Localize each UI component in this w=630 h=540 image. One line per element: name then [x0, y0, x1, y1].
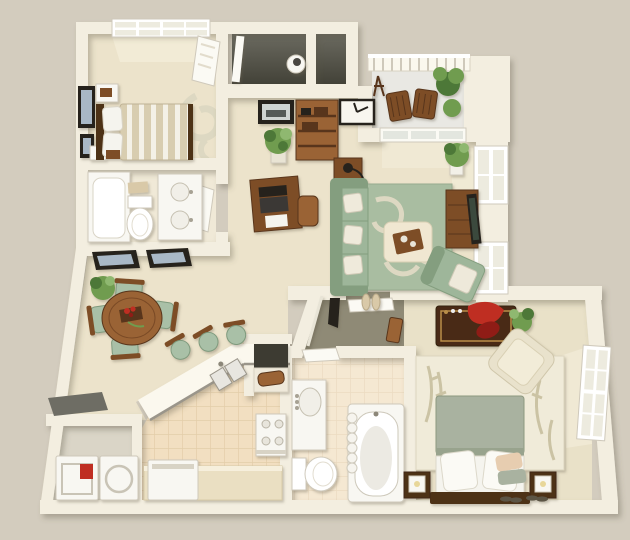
vanity-sink	[292, 380, 326, 450]
cup	[410, 241, 416, 247]
nightstand-lamp-left	[404, 472, 430, 498]
laundry-appliances	[56, 456, 138, 500]
stove-handle	[256, 450, 286, 454]
sage-sofa	[330, 178, 368, 296]
bathtub	[347, 404, 404, 502]
accent-pillow	[497, 469, 526, 486]
wall-hall-north	[216, 84, 358, 98]
slipper	[372, 294, 380, 310]
lamp-glow	[414, 481, 420, 487]
dining-wall-art-print	[151, 252, 186, 264]
throw-pillow	[343, 225, 363, 245]
shower-drain	[374, 412, 379, 417]
sage-duvet	[436, 396, 524, 454]
books	[314, 107, 328, 115]
dishwasher	[148, 460, 198, 500]
pantry	[254, 344, 288, 392]
master-door	[348, 298, 394, 312]
bookshelf	[296, 100, 338, 160]
washer	[56, 456, 98, 500]
wall-closet-divider	[306, 22, 316, 84]
window-light-bedroom	[112, 36, 208, 62]
throw-pillow	[343, 255, 363, 275]
desk	[250, 176, 302, 232]
bed-pillow	[102, 106, 123, 131]
sink	[171, 211, 189, 229]
laptop-base	[259, 196, 288, 213]
faucet	[295, 406, 299, 410]
master-window	[577, 345, 611, 441]
wall-bath2-north-a	[288, 346, 302, 358]
nightstand-item	[100, 88, 112, 97]
faucet	[189, 218, 193, 222]
wall-bath2-north-b	[336, 346, 416, 358]
books	[301, 108, 311, 115]
books	[302, 122, 318, 130]
dishwasher-handle	[152, 464, 194, 469]
patio-chair	[386, 90, 413, 121]
wall-slider-stub	[358, 128, 382, 142]
tub-basin	[93, 178, 125, 238]
wall-exterior-bottom	[40, 500, 618, 514]
bed-footrail	[188, 104, 193, 160]
towel	[128, 181, 149, 193]
sliding-glass-door	[380, 128, 466, 142]
bed-pillow	[440, 450, 478, 492]
nightstand-lamp-right	[530, 472, 556, 498]
bathroom2-door	[302, 348, 340, 362]
dryer	[100, 456, 138, 500]
centerpiece-flowers	[129, 313, 133, 317]
floorplan-screenshot	[0, 0, 630, 540]
toilet	[292, 457, 337, 491]
wall-pantry-north	[244, 334, 292, 344]
toilet-tank	[292, 458, 306, 490]
throw-pillow	[343, 193, 363, 213]
centerpiece-flowers	[130, 306, 135, 311]
desk-chair	[298, 196, 318, 226]
apartment-floorplan-render	[0, 0, 630, 540]
living-window-upper	[474, 146, 508, 204]
toilet	[127, 196, 153, 240]
slipper	[362, 294, 370, 310]
toilet-tank	[128, 196, 152, 208]
double-vanity	[158, 174, 202, 240]
wall-clock	[340, 100, 374, 124]
bed-duvet	[120, 104, 192, 160]
pantry-interior	[254, 344, 288, 368]
wall-laundry-north	[46, 414, 142, 426]
tub-water	[360, 426, 392, 490]
water-heater-top	[293, 58, 301, 66]
wall-art	[81, 90, 92, 124]
lamp-glow	[540, 481, 546, 487]
sink	[299, 388, 321, 416]
faucet	[189, 190, 193, 194]
bedroom1-window	[112, 19, 210, 37]
faucet	[295, 394, 299, 398]
storage-trunk	[436, 302, 516, 346]
master-bed	[430, 396, 530, 504]
storage-closet-b-floor	[316, 34, 346, 84]
faucet	[295, 400, 299, 404]
framed-photo-sky	[266, 110, 286, 117]
foot-bench	[106, 150, 120, 159]
toilet-bowl	[127, 208, 153, 240]
tv-stand	[446, 190, 482, 248]
papers	[265, 214, 288, 228]
hanging-clothes	[328, 298, 340, 328]
centerpiece-flowers	[124, 308, 130, 314]
cup	[401, 236, 408, 243]
sink	[171, 183, 189, 201]
dining-table	[102, 291, 162, 345]
range-stove	[256, 414, 286, 456]
dining-wall-art-print	[97, 254, 134, 266]
patio-chair	[412, 89, 438, 120]
ottoman-coffee-table	[384, 222, 432, 262]
detergent-box	[80, 464, 93, 479]
bathroom1-fixtures	[88, 172, 202, 242]
